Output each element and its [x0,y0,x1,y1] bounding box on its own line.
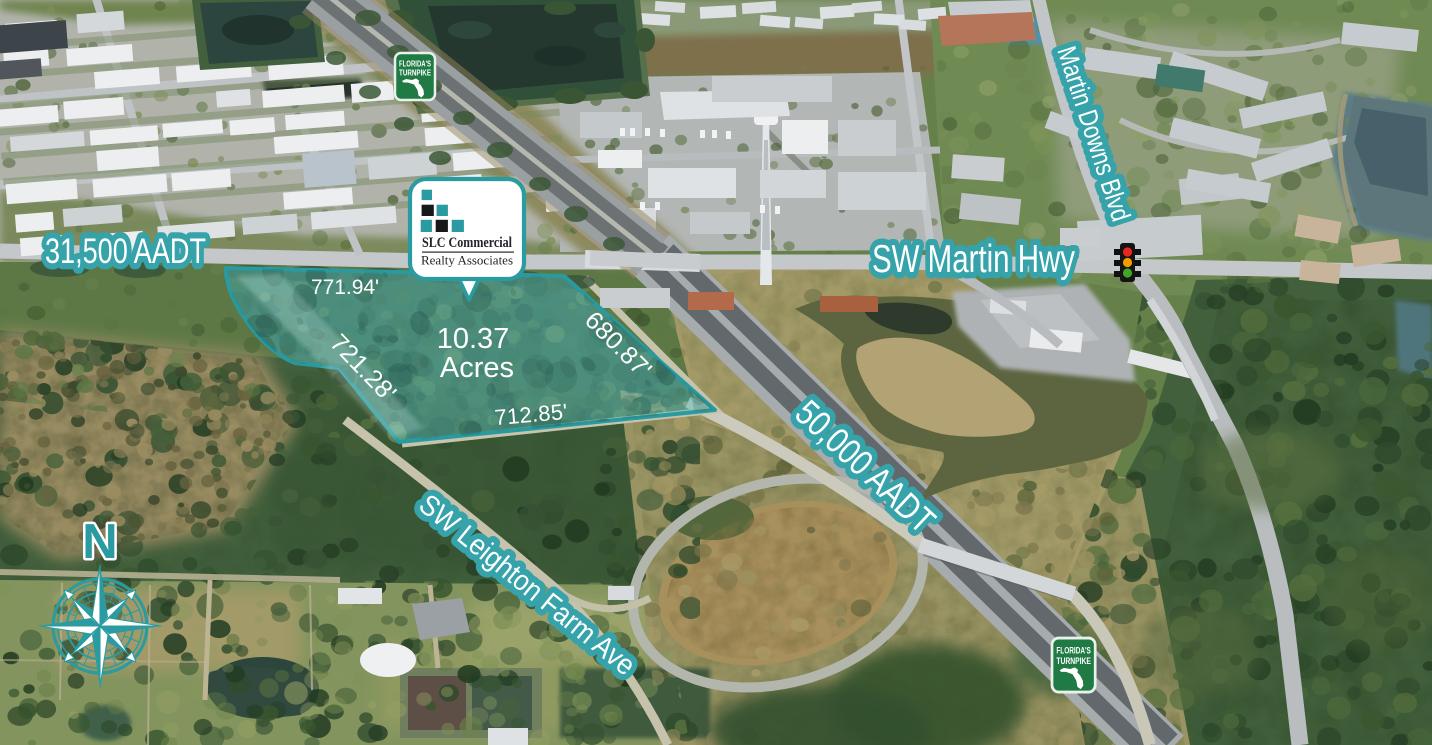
svg-text:Realty Associates: Realty Associates [421,254,513,268]
svg-text:Acres: Acres [440,352,514,384]
svg-text:FLORIDA'S: FLORIDA'S [399,60,431,69]
svg-text:SLC Commercial: SLC Commercial [422,235,512,251]
svg-text:10.37: 10.37 [437,323,510,355]
svg-text:TURNPIKE: TURNPIKE [399,69,432,78]
svg-text:TURNPIKE: TURNPIKE [1056,656,1091,666]
svg-text:N: N [82,515,117,569]
svg-text:31,500 AADT: 31,500 AADT [45,232,206,271]
svg-text:FLORIDA'S: FLORIDA'S [1056,645,1091,655]
svg-text:771.94': 771.94' [311,276,379,299]
svg-text:SW Martin Hwy: SW Martin Hwy [872,238,1075,281]
